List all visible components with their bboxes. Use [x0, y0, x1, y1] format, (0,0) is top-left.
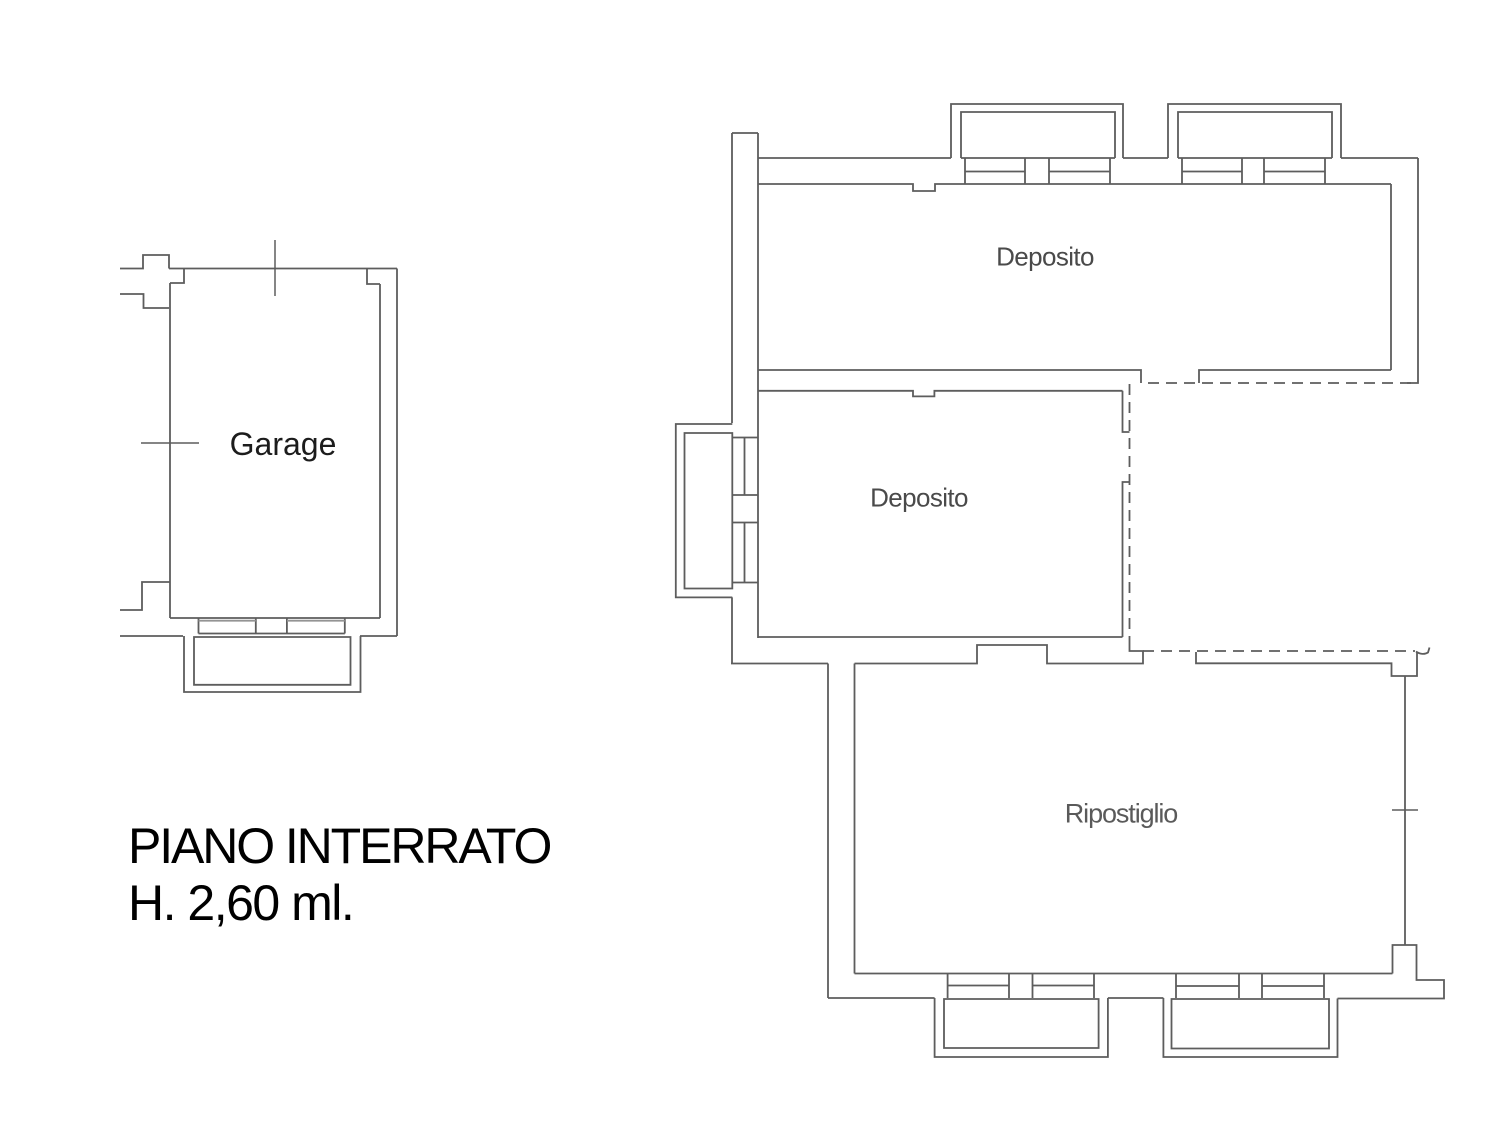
svg-text:Garage: Garage — [230, 426, 337, 462]
svg-text:PIANO INTERRATO: PIANO INTERRATO — [128, 818, 550, 874]
svg-text:Ripostiglio: Ripostiglio — [1065, 799, 1178, 829]
svg-text:Deposito: Deposito — [996, 242, 1094, 272]
svg-text:H. 2,60 ml.: H. 2,60 ml. — [128, 875, 353, 931]
svg-text:Deposito: Deposito — [870, 483, 968, 513]
